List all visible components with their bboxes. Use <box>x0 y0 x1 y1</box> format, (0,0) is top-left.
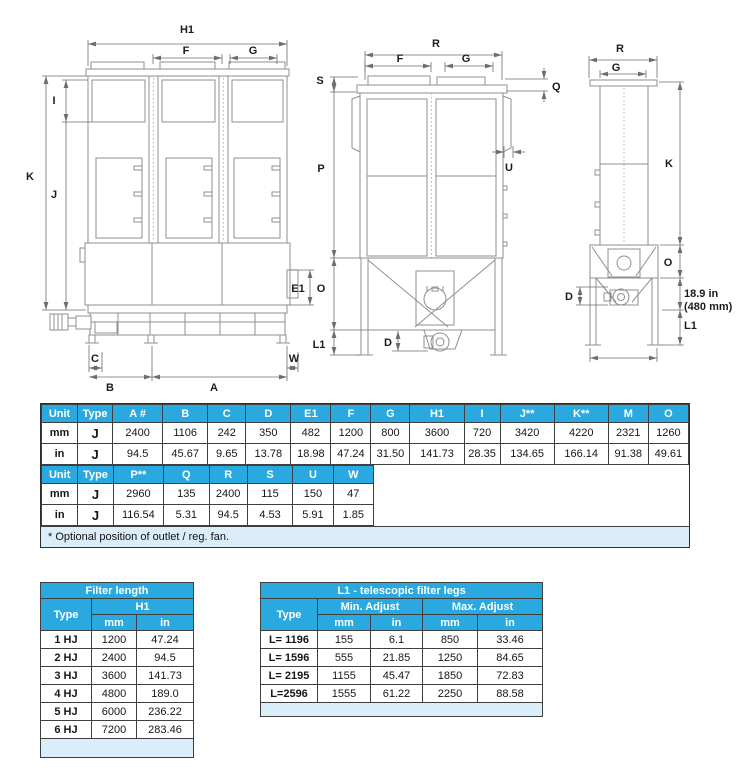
header-cell: mm <box>423 615 478 631</box>
value-cell: 242 <box>208 423 246 444</box>
header-cell: in <box>478 615 543 631</box>
filter-length-table: Filter length Type H1 mm in 1 HJ 1200 47… <box>40 582 194 758</box>
value-cell: 33.46 <box>478 631 543 649</box>
dim-label-j: J <box>51 189 57 201</box>
value-cell: 45.67 <box>163 444 208 465</box>
header-cell: F <box>331 405 371 423</box>
header-cell: mm <box>92 615 137 631</box>
header-cell: Type <box>78 466 113 484</box>
dim-label-s: S <box>316 75 323 87</box>
table-title: Filter length <box>41 583 194 599</box>
dim-label-g: G <box>612 62 621 74</box>
value-cell: 555 <box>318 649 371 667</box>
header-cell: A # <box>113 405 163 423</box>
value-cell: 150 <box>293 484 333 505</box>
dim-label-o: O <box>317 283 326 295</box>
table-row: mm J 2400 1106 242 350 482 1200 800 3600… <box>42 423 689 444</box>
table-row: in J 94.5 45.67 9.65 13.78 18.98 47.24 3… <box>42 444 689 465</box>
dim-label-r: R <box>432 38 440 50</box>
front-view-structure <box>50 62 298 343</box>
type-cell: J <box>78 484 113 505</box>
header-cell: H1 <box>92 599 194 615</box>
value-cell: 4220 <box>554 423 608 444</box>
table-title-row: Filter length <box>41 583 194 599</box>
rear-view-drawing: R G K O 18.9 in (480 mm) L1 <box>565 43 733 362</box>
dimensions-table: Unit Type A # B C D E1 F G H1 I J** K** … <box>40 403 690 548</box>
value-cell: 5.91 <box>293 505 333 526</box>
table-footnote: * Optional position of outlet / reg. fan… <box>41 526 689 547</box>
value-cell: 236.22 <box>137 703 194 721</box>
header-cell: Max. Adjust <box>423 599 543 615</box>
table-row: mm J 2960 135 2400 115 150 47 <box>42 484 374 505</box>
header-cell: C <box>208 405 246 423</box>
dim-label-g: G <box>249 45 258 57</box>
value-cell: 135 <box>164 484 209 505</box>
value-cell: 84.65 <box>478 649 543 667</box>
value-cell: 116.54 <box>113 505 163 526</box>
value-cell: 800 <box>371 423 410 444</box>
type-cell: 2 HJ <box>41 649 92 667</box>
value-cell: 720 <box>464 423 500 444</box>
value-cell: 1155 <box>318 667 371 685</box>
table-row: 3 HJ 3600 141.73 <box>41 667 194 685</box>
value-cell: 1200 <box>331 423 371 444</box>
header-cell: Unit <box>42 466 78 484</box>
header-cell: Unit <box>42 405 78 423</box>
value-cell: 4800 <box>92 685 137 703</box>
value-cell: 47.24 <box>331 444 371 465</box>
unit-cell: in <box>42 505 78 526</box>
dim-label-l1: L1 <box>313 339 326 351</box>
dimensions-table-part2: Unit Type P** Q R S U W mm J 2960 135 24… <box>41 465 374 526</box>
dim-label-a: A <box>210 382 218 394</box>
value-cell: 61.22 <box>371 685 423 703</box>
unit-cell: in <box>42 444 78 465</box>
header-cell: in <box>137 615 194 631</box>
header-cell: I <box>464 405 500 423</box>
dim-label-r: R <box>616 43 624 55</box>
value-cell: 91.38 <box>608 444 648 465</box>
value-cell: 482 <box>291 423 331 444</box>
value-cell: 49.61 <box>648 444 688 465</box>
value-cell: 1106 <box>163 423 208 444</box>
header-cell: B <box>163 405 208 423</box>
table-row: 5 HJ 6000 236.22 <box>41 703 194 721</box>
value-cell: 6.1 <box>371 631 423 649</box>
table-row: in J 116.54 5.31 94.5 4.53 5.91 1.85 <box>42 505 374 526</box>
value-cell: 45.47 <box>371 667 423 685</box>
value-cell: 1260 <box>648 423 688 444</box>
dim-label-q: Q <box>552 81 561 93</box>
header-cell: O <box>648 405 688 423</box>
type-cell: J <box>78 423 113 444</box>
dim-label-p: P <box>317 163 324 175</box>
table-header-row: Type H1 <box>41 599 194 615</box>
dim-label-w: W <box>289 353 300 365</box>
header-cell: Type <box>261 599 318 631</box>
table-title-row: L1 - telescopic filter legs <box>261 583 543 599</box>
value-cell: 1.85 <box>333 505 373 526</box>
value-cell: 2400 <box>113 423 163 444</box>
type-cell: 4 HJ <box>41 685 92 703</box>
dim-label-o: O <box>664 257 673 269</box>
header-cell: E1 <box>291 405 331 423</box>
telescopic-legs-table: L1 - telescopic filter legs Type Min. Ad… <box>260 582 543 717</box>
table-title: L1 - telescopic filter legs <box>261 583 543 599</box>
table-header-row: Unit Type P** Q R S U W <box>42 466 374 484</box>
table-row: L= 1196 155 6.1 850 33.46 <box>261 631 543 649</box>
value-cell: 13.78 <box>246 444 291 465</box>
value-cell: 21.85 <box>371 649 423 667</box>
value-cell: 2400 <box>92 649 137 667</box>
technical-drawings: H1 F G K I J <box>0 0 737 396</box>
value-cell: 47 <box>333 484 373 505</box>
value-cell: 5.31 <box>164 505 209 526</box>
type-cell: 1 HJ <box>41 631 92 649</box>
dim-label-d: D <box>565 291 573 303</box>
type-cell: 5 HJ <box>41 703 92 721</box>
table-row: 4 HJ 4800 189.0 <box>41 685 194 703</box>
value-cell: 850 <box>423 631 478 649</box>
header-cell: S <box>247 466 292 484</box>
type-cell: J <box>78 444 113 465</box>
side-view-structure <box>352 76 511 355</box>
dim-label-e1: E1 <box>291 283 304 295</box>
header-cell: Type <box>78 405 113 423</box>
value-cell: 189.0 <box>137 685 194 703</box>
dim-label-l1: L1 <box>684 320 697 332</box>
dim-label-f: F <box>183 45 190 57</box>
table-row: L= 1596 555 21.85 1250 84.65 <box>261 649 543 667</box>
header-cell: U <box>293 466 333 484</box>
screw-conveyor-motor <box>50 314 117 333</box>
dim-label-k: K <box>26 171 34 183</box>
value-cell: 3420 <box>500 423 554 444</box>
header-cell: G <box>371 405 410 423</box>
table-footer-row <box>261 703 543 717</box>
bottom-tables: Filter length Type H1 mm in 1 HJ 1200 47… <box>40 582 543 758</box>
table-row: 1 HJ 1200 47.24 <box>41 631 194 649</box>
table-row: L=2596 1555 61.22 2250 88.58 <box>261 685 543 703</box>
front-view-drawing: H1 F G K I J <box>26 24 314 394</box>
header-cell: K** <box>554 405 608 423</box>
header-cell: Min. Adjust <box>318 599 423 615</box>
type-cell: 6 HJ <box>41 721 92 739</box>
value-cell: 72.83 <box>478 667 543 685</box>
value-cell: 115 <box>247 484 292 505</box>
header-cell: P** <box>113 466 163 484</box>
header-cell: H1 <box>410 405 464 423</box>
empty-footer-cell <box>261 703 543 717</box>
value-cell: 3600 <box>410 423 464 444</box>
value-cell: 31.50 <box>371 444 410 465</box>
header-cell: Q <box>164 466 209 484</box>
value-cell: 6000 <box>92 703 137 721</box>
side-view-drawing: R F G Q S P <box>313 38 561 355</box>
value-cell: 141.73 <box>410 444 464 465</box>
type-cell: 3 HJ <box>41 667 92 685</box>
value-cell: 18.98 <box>291 444 331 465</box>
unit-cell: mm <box>42 423 78 444</box>
table-row: 6 HJ 7200 283.46 <box>41 721 194 739</box>
value-cell: 94.5 <box>113 444 163 465</box>
type-cell: L= 2195 <box>261 667 318 685</box>
value-cell: 47.24 <box>137 631 194 649</box>
dimensions-table-part1: Unit Type A # B C D E1 F G H1 I J** K** … <box>41 404 689 465</box>
type-cell: L= 1196 <box>261 631 318 649</box>
table-header-row: Type Min. Adjust Max. Adjust <box>261 599 543 615</box>
table-row: 2 HJ 2400 94.5 <box>41 649 194 667</box>
value-cell: 88.58 <box>478 685 543 703</box>
type-cell: L=2596 <box>261 685 318 703</box>
dim-label-fixed-height-mm: (480 mm) <box>684 301 733 313</box>
value-cell: 4.53 <box>247 505 292 526</box>
value-cell: 155 <box>318 631 371 649</box>
value-cell: 94.5 <box>209 505 247 526</box>
value-cell: 2400 <box>209 484 247 505</box>
header-cell: M <box>608 405 648 423</box>
value-cell: 94.5 <box>137 649 194 667</box>
unit-cell: mm <box>42 484 78 505</box>
value-cell: 350 <box>246 423 291 444</box>
dim-label-b: B <box>106 382 114 394</box>
header-cell: mm <box>318 615 371 631</box>
header-cell: D <box>246 405 291 423</box>
dim-label-f: F <box>397 53 404 65</box>
header-cell: W <box>333 466 373 484</box>
value-cell: 2250 <box>423 685 478 703</box>
header-cell: Type <box>41 599 92 631</box>
value-cell: 7200 <box>92 721 137 739</box>
table-footer-row <box>41 739 194 758</box>
type-cell: J <box>78 505 113 526</box>
dim-label-u: U <box>505 162 513 174</box>
value-cell: 1250 <box>423 649 478 667</box>
dim-label-d: D <box>384 337 392 349</box>
value-cell: 2321 <box>608 423 648 444</box>
value-cell: 2960 <box>113 484 163 505</box>
dim-label-k: K <box>665 158 673 170</box>
dim-label-h1: H1 <box>180 24 194 36</box>
header-cell: R <box>209 466 247 484</box>
dim-label-i: I <box>52 95 55 107</box>
type-cell: L= 1596 <box>261 649 318 667</box>
table-row: L= 2195 1155 45.47 1850 72.83 <box>261 667 543 685</box>
table-header-row: Unit Type A # B C D E1 F G H1 I J** K** … <box>42 405 689 423</box>
datasheet-page: H1 F G K I J <box>0 0 737 777</box>
value-cell: 1850 <box>423 667 478 685</box>
value-cell: 1555 <box>318 685 371 703</box>
empty-footer-cell <box>41 739 194 758</box>
value-cell: 134.65 <box>500 444 554 465</box>
value-cell: 283.46 <box>137 721 194 739</box>
dim-label-fixed-height-in: 18.9 in <box>684 288 719 300</box>
header-cell: in <box>371 615 423 631</box>
header-cell: J** <box>500 405 554 423</box>
value-cell: 3600 <box>92 667 137 685</box>
value-cell: 141.73 <box>137 667 194 685</box>
value-cell: 166.14 <box>554 444 608 465</box>
value-cell: 1200 <box>92 631 137 649</box>
dim-label-g: G <box>462 53 471 65</box>
value-cell: 9.65 <box>208 444 246 465</box>
value-cell: 28.35 <box>464 444 500 465</box>
dim-label-c: C <box>91 353 99 365</box>
